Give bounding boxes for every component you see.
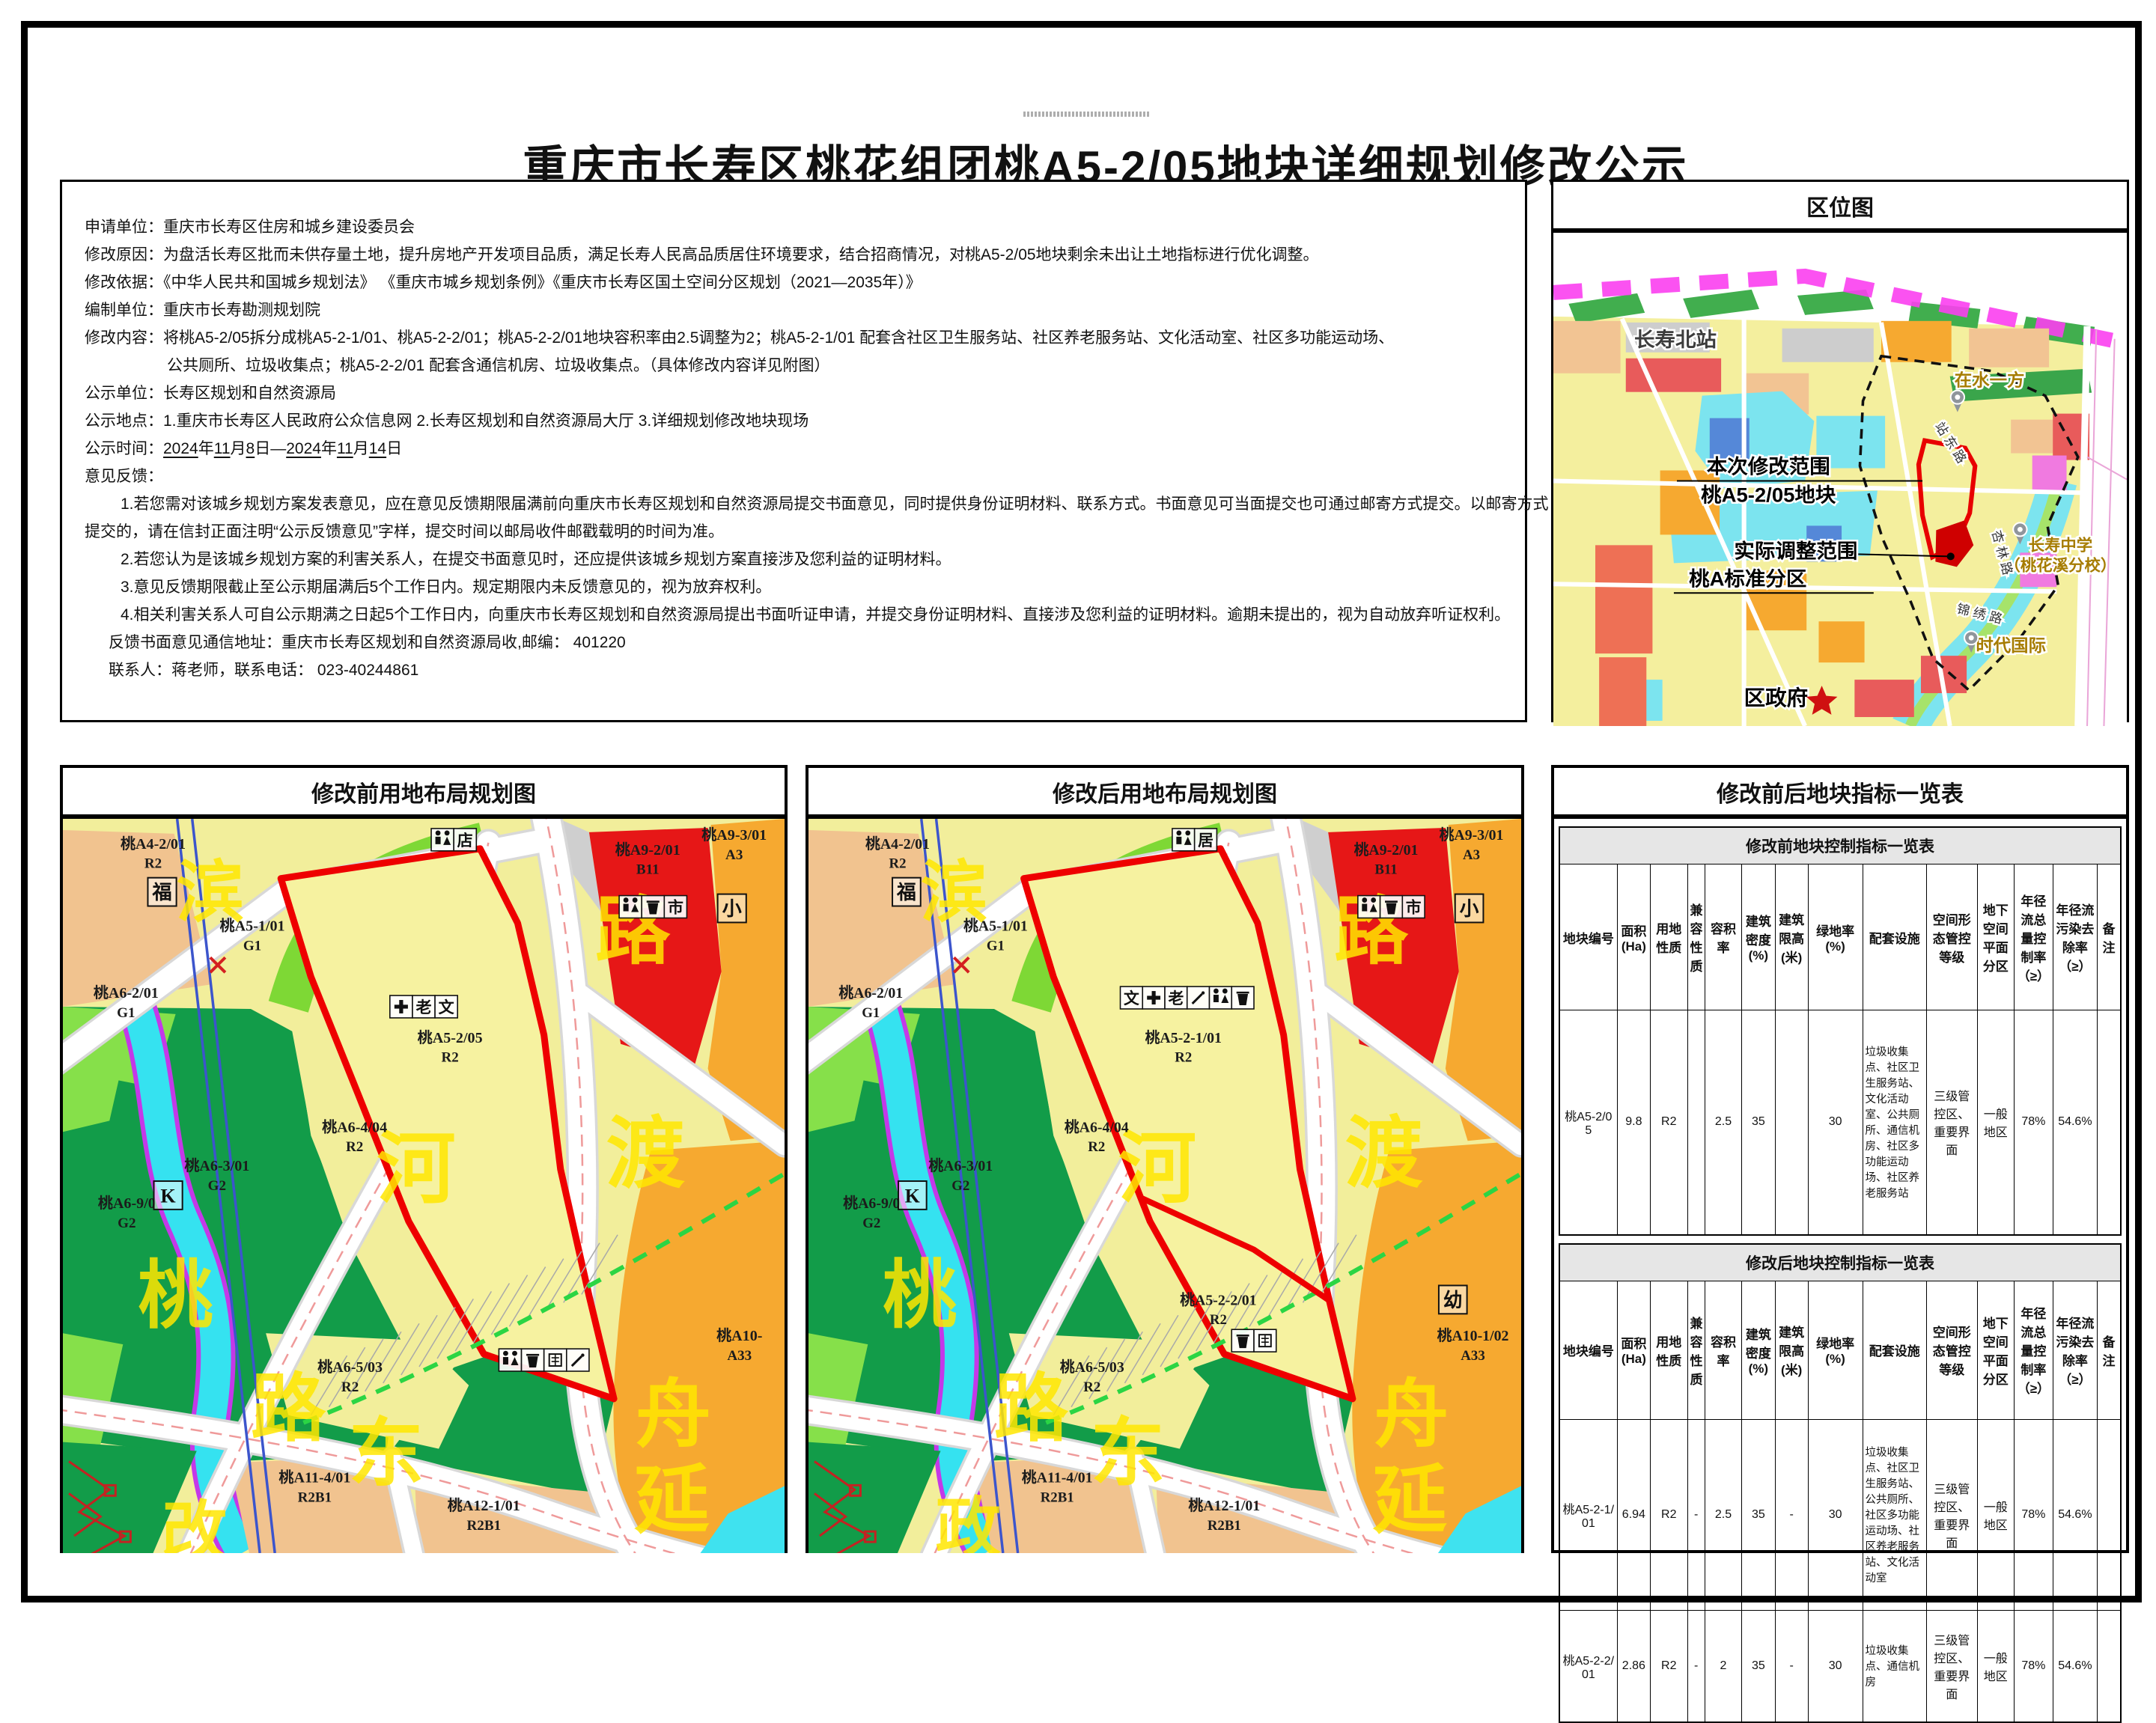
landmark-zaishuiyifang-label: 在水一方 — [1955, 370, 2025, 390]
table-header-cell: 空间形态管控等级 — [1927, 1281, 1978, 1419]
table-row: 桃A5-2/059.8R22.53530垃圾收集点、社区卫生服务站、文化活动室、… — [1559, 1010, 2121, 1235]
parcel-label: 桃A6-4/04 — [322, 1118, 387, 1135]
notice-line: 修改内容：将桃A5-2/05拆分成桃A5-2-1/01、桃A5-2-2/01；桃… — [85, 324, 1502, 352]
road-name-char: 路 — [251, 1368, 326, 1451]
table-header-cell: 备注 — [2098, 1281, 2122, 1419]
table-header-cell: 年径流污染去除率（≥） — [2053, 864, 2097, 1010]
parcel-label: 桃A5-2-2/01 — [1180, 1291, 1256, 1308]
parcel-label: 桃A10-1/02 — [1437, 1327, 1509, 1344]
parcel-code: R2 — [346, 1139, 363, 1155]
notice-line: 反馈书面意见通信地址：重庆市长寿区规划和自然资源局收,邮编： 401220 — [85, 629, 1502, 656]
table-header-cell: 建筑限高(米) — [1775, 864, 1808, 1010]
notice-line: 意见反馈： — [85, 463, 1502, 490]
notice-text-segment: 日 — [386, 440, 402, 457]
facility-icon-strip: 居 — [1172, 829, 1217, 851]
table-header-cell: 地块编号 — [1559, 864, 1617, 1010]
notice-line: 联系人：蒋老师，联系电话： 023-40244861 — [85, 656, 1502, 684]
parcel-label: 桃A6-2/01 — [94, 984, 159, 1001]
parcel-code: G2 — [862, 1216, 880, 1231]
school-label-line1: 长寿中学 — [2029, 536, 2093, 555]
svg-text:老: 老 — [415, 998, 431, 1016]
table-before-container: 修改前地块控制指标一览表地块编号面积(Ha)用地性质兼容性质容积率建筑密度(%)… — [1554, 826, 2126, 1236]
parcel-code: G1 — [987, 938, 1005, 954]
table-header-cell: 面积(Ha) — [1617, 864, 1650, 1010]
notice-line: 修改依据：《中华人民共和国城乡规划法》 《重庆市城乡规划条例》《重庆市长寿区国土… — [85, 269, 1502, 296]
parcel-code: R2 — [341, 1379, 359, 1395]
road-name-char: 桃 — [883, 1254, 957, 1337]
scope-label-line1: 本次修改范围 — [1707, 455, 1830, 478]
map-after-canvas: 滨路河渡桃路东舟延政桃A4-2/01R2桃A9-2/01B11桃A9-3/01A… — [808, 819, 1521, 1553]
parcel-code: R2 — [144, 856, 162, 872]
table-cell: 35 — [1742, 1610, 1775, 1722]
notice-line: 1.若您需对该城乡规划方案发表意见，应在意见反馈期限届满前向重庆市长寿区规划和自… — [85, 490, 1502, 518]
table-cell: - — [1687, 1610, 1705, 1722]
svg-text:小: 小 — [722, 898, 742, 920]
notice-text-segment: 月 — [353, 440, 369, 457]
table-cell: 2.5 — [1705, 1010, 1742, 1235]
parcel-label: 桃A12-1/01 — [1188, 1497, 1260, 1514]
parcel-label: 桃A9-2/01 — [615, 841, 680, 859]
table-cell: - — [1775, 1419, 1808, 1610]
svg-text:K: K — [160, 1186, 176, 1207]
parcel-code: A33 — [1461, 1348, 1484, 1364]
table-cell: 54.6% — [2053, 1610, 2097, 1722]
parcel-label: 桃A6-2/01 — [838, 984, 903, 1001]
parcel-label: 桃A4-2/01 — [865, 835, 930, 853]
parcel-code: A3 — [725, 847, 743, 863]
parcel-code: R2 — [1210, 1312, 1227, 1328]
facility-icon-strip: 市 — [619, 896, 686, 918]
table-header-cell: 空间形态管控等级 — [1927, 864, 1978, 1010]
table-header-cell: 兼容性质 — [1687, 1281, 1705, 1419]
table-cell: 35 — [1742, 1419, 1775, 1610]
road-name-char: 路 — [994, 1368, 1069, 1451]
table-cell: 78% — [2015, 1610, 2053, 1722]
parcel-code: R2B1 — [1041, 1489, 1074, 1505]
notice-text-panel: 申请单位：重庆市长寿区住房和城乡建设委员会修改原因：为盘活长寿区批而未供存量土地… — [60, 180, 1527, 722]
svg-text:市: 市 — [1406, 898, 1422, 916]
svg-text:店: 店 — [457, 832, 473, 850]
road-name-char: 延 — [1373, 1460, 1448, 1542]
road-name-char: 渡 — [1345, 1111, 1423, 1198]
table-cell: 54.6% — [2053, 1419, 2097, 1610]
table-header-cell: 建筑限高(米) — [1775, 1281, 1808, 1419]
station-label: 长寿北站 — [1634, 328, 1717, 351]
table-after-container: 修改后地块控制指标一览表地块编号面积(Ha)用地性质兼容性质容积率建筑密度(%)… — [1554, 1243, 2126, 1723]
notice-line: 申请单位：重庆市长寿区住房和城乡建设委员会 — [85, 213, 1502, 241]
parcel-label: 桃A5-2-1/01 — [1145, 1029, 1222, 1046]
table-cell: 30 — [1808, 1419, 1863, 1610]
subzone-label: 桃A标准分区 — [1689, 567, 1806, 591]
facility-icon-strip — [499, 1349, 589, 1371]
table-cell: R2 — [1651, 1010, 1688, 1235]
table-cell: 三级管控区、重要界面 — [1927, 1610, 1978, 1722]
parcel-code: G2 — [951, 1178, 969, 1194]
indicator-table: 修改后地块控制指标一览表地块编号面积(Ha)用地性质兼容性质容积率建筑密度(%)… — [1559, 1243, 2122, 1723]
title-rule — [1554, 814, 2126, 819]
table-cell: 桃A5-2-1/01 — [1559, 1419, 1617, 1610]
table-header-cell: 用地性质 — [1651, 864, 1688, 1010]
notice-line: 公示单位：长寿区规划和自然资源局 — [85, 379, 1502, 407]
parcel-code: R2 — [1088, 1139, 1105, 1155]
table-cell: 垃圾收集点、社区卫生服务站、文化活动室、公共厕所、通信机房、社区多功能运动场、社… — [1863, 1010, 1927, 1235]
parcel-label: 桃A9-3/01 — [1440, 826, 1504, 844]
notice-line: 修改原因：为盘活长寿区批而未供存量土地，提升房地产开发项目品质，满足长寿人民高品… — [85, 241, 1502, 269]
table-cell — [2098, 1010, 2122, 1235]
map-after-title: 修改后用地布局规划图 — [808, 768, 1521, 814]
facility-icon-strip: 店 — [431, 829, 476, 851]
notice-text-segment: 年 — [321, 440, 337, 457]
notice-line: 3.意见反馈期限截止至公示期届满后5个工作日内。规定期限内未反馈意见的，视为放弃… — [85, 573, 1502, 601]
parcel-label: 桃A6-9/0 — [843, 1195, 900, 1212]
facility-icon-strip — [1231, 1329, 1276, 1352]
parcel-label: 桃A6-5/03 — [317, 1358, 383, 1376]
road-name-char: 河 — [1118, 1126, 1196, 1213]
svg-text:文: 文 — [439, 998, 455, 1016]
sub-table-title: 修改前地块控制指标一览表 — [1559, 827, 2121, 864]
notice-line: 编制单位：重庆市长寿勘测规划院 — [85, 296, 1502, 324]
map-before-canvas: 滨路河渡桃路东舟延改桃A4-2/01R2桃A9-2/01B11桃A9-3/01A… — [63, 819, 785, 1553]
table-cell: 2.5 — [1705, 1419, 1742, 1610]
notice-text-segment: 11 — [214, 440, 231, 457]
school-label-line2: （桃花溪分校） — [2005, 556, 2117, 575]
map-before-panel: 修改前用地布局规划图 滨路河渡桃路东舟延改桃A4-2/01R2桃A9-2/01B… — [60, 765, 788, 1553]
parcel-label: 桃A6-3/01 — [184, 1157, 249, 1174]
parcel-label: 桃A5-1/01 — [963, 917, 1028, 934]
svg-text:幼: 幼 — [1443, 1290, 1463, 1311]
road-name-char: 改 — [162, 1497, 228, 1553]
road-name-char: 东 — [1091, 1412, 1165, 1495]
parcel-label: 桃A6-4/04 — [1065, 1118, 1129, 1135]
table-header-cell: 面积(Ha) — [1617, 1281, 1650, 1419]
times-intl-label: 时代国际 — [1976, 635, 2046, 655]
parcel-code: B11 — [636, 862, 660, 878]
parcel-code: R2 — [889, 856, 906, 872]
road-name-char: 延 — [634, 1460, 709, 1543]
notice-line: 提交的，请在信封正面注明“公示反馈意见”字样，提交时间以邮局收件邮戳载明的时间为… — [85, 518, 1502, 546]
sub-table-title: 修改后地块控制指标一览表 — [1559, 1244, 2121, 1281]
indicator-table: 修改前地块控制指标一览表地块编号面积(Ha)用地性质兼容性质容积率建筑密度(%)… — [1559, 826, 2122, 1236]
svg-text:文: 文 — [1124, 989, 1139, 1007]
notice-text-segment: 14 — [369, 440, 386, 457]
table-cell: 78% — [2015, 1010, 2053, 1235]
table-cell — [1775, 1010, 1808, 1235]
table-cell: 三级管控区、重要界面 — [1927, 1419, 1978, 1610]
table-row: 桃A5-2-1/016.94R2-2.535-30垃圾收集点、社区卫生服务站、公… — [1559, 1419, 2121, 1610]
notice-text-segment: 2024 — [286, 440, 321, 457]
table-header-cell: 建筑密度(%) — [1742, 1281, 1775, 1419]
map-after-panel: 修改后用地布局规划图 滨路河渡桃路东舟延政桃A4-2/01R2桃A9-2/01B… — [806, 765, 1524, 1553]
notice-text-segment: 年 — [198, 440, 214, 457]
parcel-code: G2 — [118, 1216, 135, 1231]
facility-icon-strip: 文老 — [1121, 986, 1255, 1009]
parcel-code: G1 — [862, 1005, 880, 1021]
parcel-label: 桃A5-1/01 — [220, 917, 285, 934]
notice-line: 4.相关利害关系人可自公示期满之日起5个工作日内，向重庆市长寿区规划和自然资源局… — [85, 601, 1502, 629]
notice-line: 公示时间：2024年11月8日—2024年11月14日 — [85, 435, 1502, 463]
table-cell: 垃圾收集点、通信机房 — [1863, 1610, 1927, 1722]
parcel-code: R2B1 — [467, 1518, 502, 1534]
table-cell — [2098, 1610, 2122, 1722]
road-name-char: 政 — [936, 1492, 1002, 1553]
scope-label-line2: 桃A5-2/05地块 — [1701, 484, 1836, 507]
parcel-label: 桃A11-4/01 — [1022, 1469, 1093, 1486]
table-cell: 30 — [1808, 1610, 1863, 1722]
table-cell: 一般地区 — [1977, 1610, 2015, 1722]
road-name-char: 东 — [349, 1412, 424, 1495]
table-cell: 30 — [1808, 1010, 1863, 1235]
parcel-label: 桃A9-3/01 — [701, 826, 767, 844]
location-map-title: 区位图 — [1553, 182, 2127, 228]
table-cell: 桃A5-2/05 — [1559, 1010, 1617, 1235]
parcel-label: 桃A9-2/01 — [1354, 841, 1419, 859]
table-cell: 2 — [1705, 1610, 1742, 1722]
indicator-table-title: 修改前后地块指标一览表 — [1554, 768, 2126, 814]
svg-text:老: 老 — [1168, 989, 1184, 1007]
notice-line: 公共厕所、垃圾收集点；桃A5-2-2/01 配套含通信机房、垃圾收集点。（具体修… — [85, 352, 1502, 379]
table-cell: 垃圾收集点、社区卫生服务站、公共厕所、社区多功能运动场、社区养老服务站、文化活动… — [1863, 1419, 1927, 1610]
parcel-code: R2B1 — [298, 1489, 332, 1505]
table-cell: 2.86 — [1617, 1610, 1650, 1722]
parcel-code: A3 — [1463, 847, 1480, 863]
notice-line: 公示地点：1.重庆市长寿区人民政府公众信息网 2.长寿区规划和自然资源局大厅 3… — [85, 407, 1502, 435]
table-cell: - — [1775, 1610, 1808, 1722]
table-header-cell: 建筑密度(%) — [1742, 864, 1775, 1010]
road-name-char: 桃 — [138, 1254, 213, 1338]
parcel-label: 桃A4-2/01 — [121, 835, 186, 853]
parcel-label: 桃A6-9/0 — [98, 1195, 156, 1212]
notice-text-segment: 公示时间： — [85, 440, 163, 457]
parcel-code: G1 — [243, 938, 261, 954]
table-cell — [2098, 1419, 2122, 1610]
svg-text:福: 福 — [151, 882, 171, 903]
table-header-cell: 绿地率(%) — [1808, 864, 1863, 1010]
table-cell: 35 — [1742, 1010, 1775, 1235]
table-cell: 6.94 — [1617, 1419, 1650, 1610]
table-row: 桃A5-2-2/012.86R2-235-30垃圾收集点、通信机房三级管控区、重… — [1559, 1610, 2121, 1722]
svg-text:居: 居 — [1198, 832, 1213, 850]
table-header-cell: 容积率 — [1705, 1281, 1742, 1419]
table-header-cell: 备注 — [2098, 864, 2122, 1010]
table-cell — [1687, 1010, 1705, 1235]
table-header-cell: 地块编号 — [1559, 1281, 1617, 1419]
parcel-code: R2 — [441, 1050, 458, 1066]
parcel-code: G1 — [117, 1005, 135, 1021]
table-header-cell: 容积率 — [1705, 864, 1742, 1010]
table-header-cell: 年径流污染去除率（≥） — [2053, 1281, 2097, 1419]
map-before-title: 修改前用地布局规划图 — [63, 768, 785, 814]
table-cell: 一般地区 — [1977, 1419, 2015, 1610]
parcel-label: 桃A11-4/01 — [278, 1469, 350, 1486]
table-header-cell: 地下空间平面分区 — [1977, 1281, 2015, 1419]
notice-text-segment: 11 — [337, 440, 353, 457]
facility-icon-strip: 市 — [1358, 896, 1425, 918]
table-header-cell: 年径流总量控制率（≥） — [2015, 1281, 2053, 1419]
parcel-label: 桃A6-3/01 — [928, 1157, 993, 1174]
parcel-label: 桃A12-1/01 — [448, 1497, 520, 1514]
table-header-cell: 年径流总量控制率（≥） — [2015, 864, 2053, 1010]
parcel-label: 桃A5-2/05 — [418, 1029, 483, 1046]
parcel-code: R2B1 — [1208, 1518, 1241, 1534]
svg-text:小: 小 — [1460, 898, 1479, 920]
actual-adjust-label: 实际调整范围 — [1734, 540, 1857, 563]
table-cell: - — [1687, 1419, 1705, 1610]
road-name-char: 渡 — [606, 1111, 685, 1198]
table-header-cell: 用地性质 — [1651, 1281, 1688, 1419]
notice-text-segment: 日— — [255, 440, 286, 457]
parcel-label: 桃A10- — [716, 1327, 762, 1344]
table-cell: 78% — [2015, 1419, 2053, 1610]
table-cell: R2 — [1651, 1610, 1688, 1722]
table-cell: 一般地区 — [1977, 1010, 2015, 1235]
table-header-cell: 绿地率(%) — [1808, 1281, 1863, 1419]
road-name-char: 舟 — [1374, 1374, 1449, 1457]
notice-text-segment: 8 — [246, 440, 255, 457]
table-header-cell: 配套设施 — [1863, 1281, 1927, 1419]
table-cell: R2 — [1651, 1419, 1688, 1610]
notice-text-segment: 2024 — [163, 440, 198, 457]
table-cell: 54.6% — [2053, 1010, 2097, 1235]
table-header-cell: 配套设施 — [1863, 864, 1927, 1010]
illegible-microtext — [1023, 112, 1151, 117]
parcel-code: G2 — [208, 1178, 226, 1194]
table-cell: 三级管控区、重要界面 — [1927, 1010, 1978, 1235]
table-header-cell: 地下空间平面分区 — [1977, 864, 2015, 1010]
svg-text:市: 市 — [668, 899, 683, 917]
notice-text-segment: 月 — [231, 440, 246, 457]
parcel-code: B11 — [1374, 862, 1397, 878]
table-header-cell: 兼容性质 — [1687, 864, 1705, 1010]
parcel-code: R2 — [1083, 1379, 1100, 1395]
notice-lines: 申请单位：重庆市长寿区住房和城乡建设委员会修改原因：为盘活长寿区批而未供存量土地… — [85, 213, 1502, 684]
parcel-label: 桃A6-5/03 — [1060, 1358, 1124, 1376]
location-map: 长寿北站 在水一方 本次修改范围 桃A5-2/05地块 实际调整范围 长寿中学 … — [1553, 233, 2127, 726]
table-cell: 桃A5-2-2/01 — [1559, 1610, 1617, 1722]
indicator-table-panel: 修改前后地块指标一览表 修改前地块控制指标一览表地块编号面积(Ha)用地性质兼容… — [1551, 765, 2129, 1553]
district-gov-label: 区政府 — [1744, 686, 1809, 710]
facility-icon-strip: 老文 — [390, 995, 457, 1018]
parcel-code: R2 — [1175, 1050, 1192, 1066]
table-cell: 9.8 — [1617, 1010, 1650, 1235]
notice-line: 2.若您认为是该城乡规划方案的利害关系人，在提交书面意见时，还应提供该城乡规划方… — [85, 546, 1502, 573]
svg-text:福: 福 — [896, 882, 916, 903]
svg-text:K: K — [905, 1185, 920, 1207]
location-map-panel: 区位图 — [1551, 180, 2129, 722]
road-name-char: 河 — [377, 1126, 455, 1213]
road-name-char: 舟 — [636, 1373, 710, 1457]
parcel-code: A33 — [727, 1348, 752, 1364]
